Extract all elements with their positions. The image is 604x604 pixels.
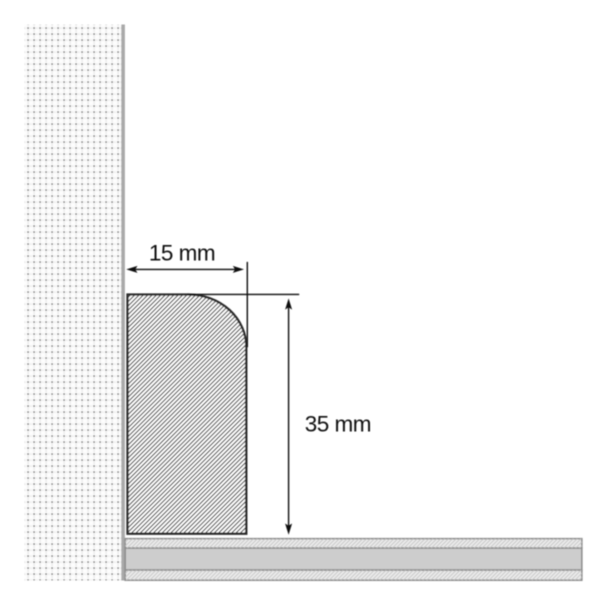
svg-text:15 mm: 15 mm <box>149 241 215 266</box>
svg-text:35 mm: 35 mm <box>305 412 371 437</box>
